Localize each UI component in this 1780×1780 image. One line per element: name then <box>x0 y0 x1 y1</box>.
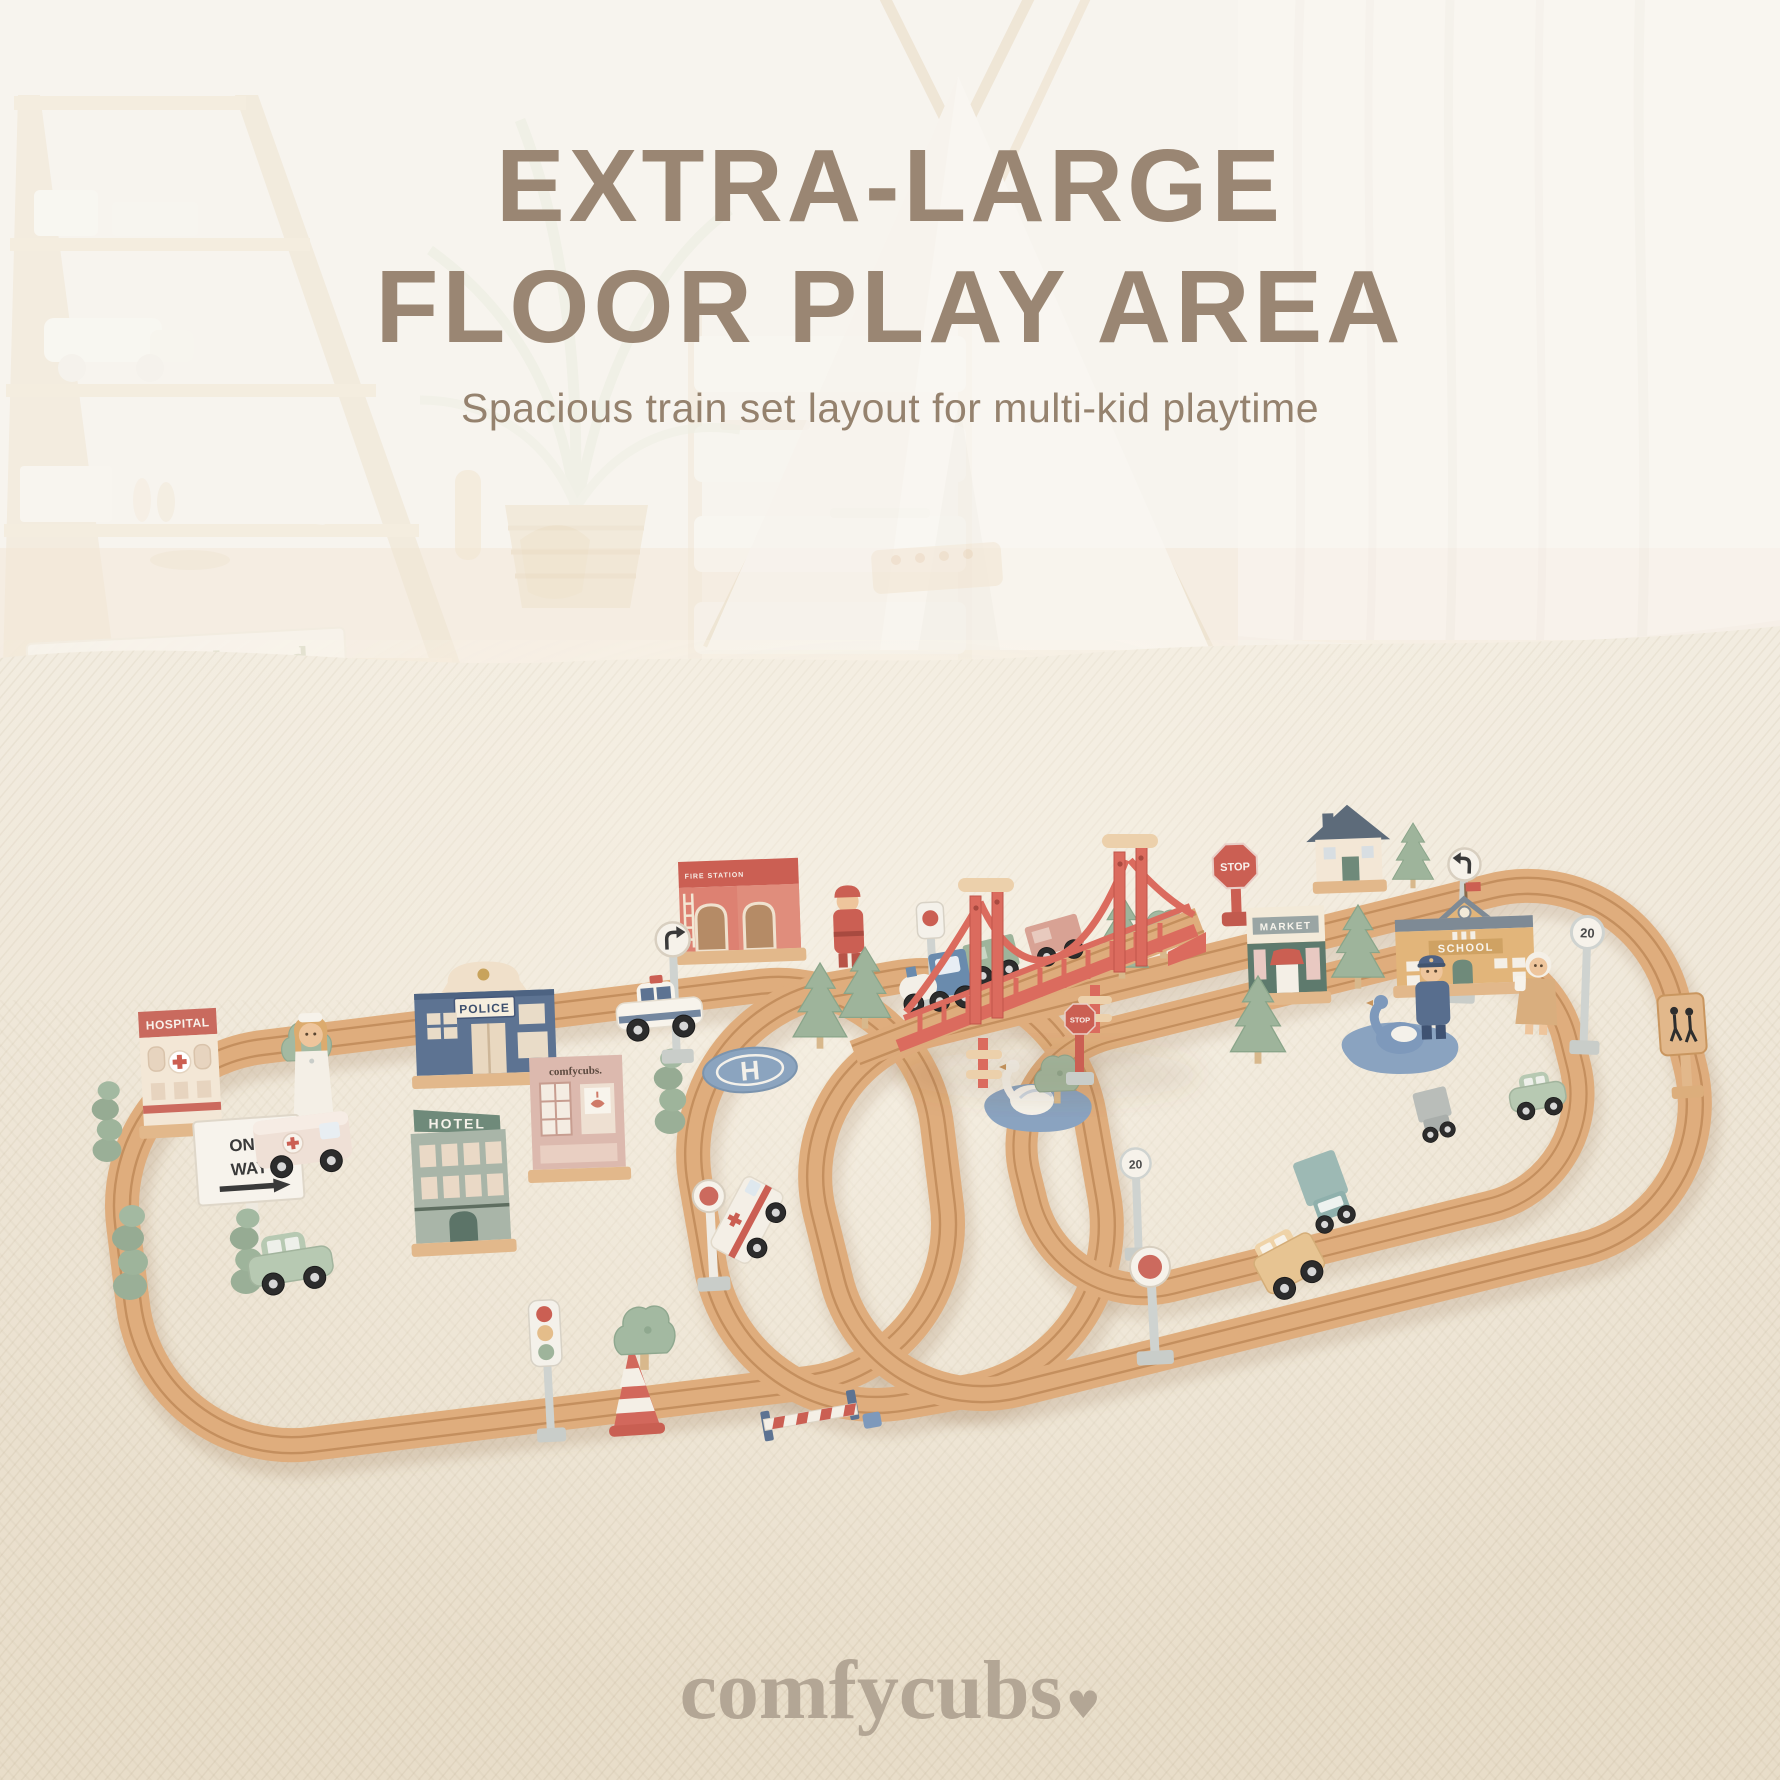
stop-label: STOP <box>1220 861 1250 874</box>
market-label: MARKET <box>1260 921 1312 934</box>
stop-small-label: STOP <box>1070 1016 1090 1025</box>
fire-station-building: FIRE STATION <box>673 858 807 965</box>
house-door <box>1342 856 1360 881</box>
clock-icon <box>1458 906 1470 918</box>
headline-line1: EXTRA-LARGE <box>0 126 1780 247</box>
brand-logo: comfycubs♥ <box>0 1642 1780 1739</box>
hospital-building: HOSPITAL <box>133 1008 228 1139</box>
subtitle: Spacious train set layout for multi-kid … <box>0 385 1780 432</box>
flag-icon <box>1466 882 1481 892</box>
speed-limit-right-label: 20 <box>1580 925 1595 940</box>
police-label: POLICE <box>459 1001 510 1017</box>
marketing-image: little seed <box>0 0 1780 1780</box>
shop-building: comfycubs. <box>524 1055 631 1184</box>
shop-label: comfycubs. <box>549 1064 602 1078</box>
hotel-building: HOTEL <box>404 1105 517 1257</box>
speed-limit-bottom-label: 20 <box>1129 1157 1143 1171</box>
headline-line2: FLOOR PLAY AREA <box>0 247 1780 368</box>
brand-name: comfycubs <box>680 1644 1063 1737</box>
held-item <box>1515 976 1527 991</box>
school-door <box>1452 959 1473 984</box>
siren-icon <box>649 975 663 984</box>
hotel-label: HOTEL <box>428 1116 485 1132</box>
school-label: SCHOOL <box>1438 942 1494 956</box>
helipad-letter: H <box>739 1055 761 1087</box>
block-toy <box>862 1411 882 1429</box>
hero-text-block: EXTRA-LARGE FLOOR PLAY AREA Spacious tra… <box>0 126 1780 432</box>
heart-icon: ♥ <box>1066 1683 1100 1727</box>
hotel-door <box>449 1211 479 1242</box>
